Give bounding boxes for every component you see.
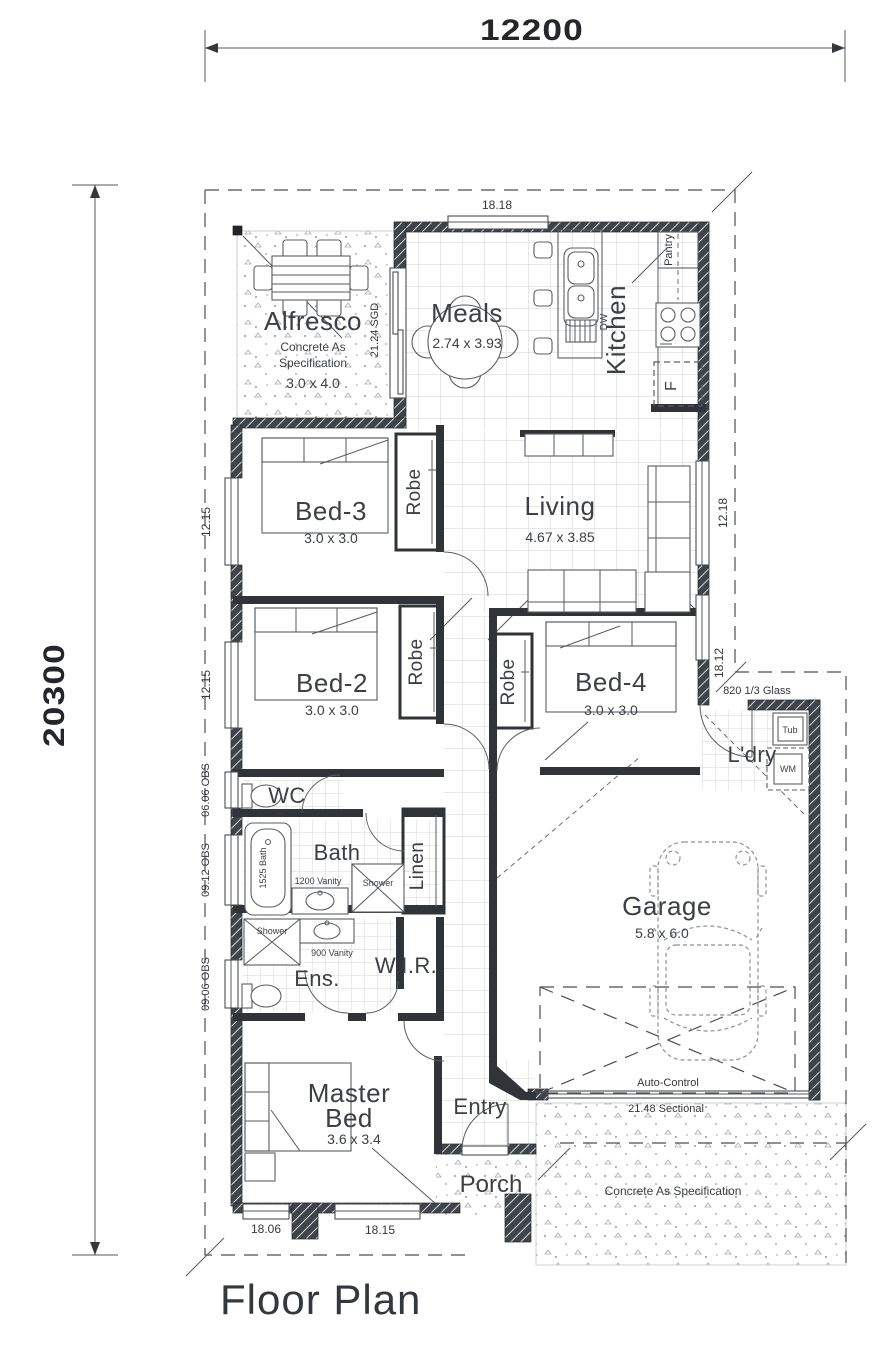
ens-window-dim: 09.06 OBS [200,957,212,1011]
alfresco-sgd-dim: 21.24 SGD [369,303,381,357]
ens-window [225,960,238,1008]
bed2-window-dim: 12.15 [199,670,213,700]
master-bed-label-2: Bed [325,1103,373,1133]
meals-window [448,216,548,229]
floor-plan-page: 12200 20300 [0,0,884,1350]
bed4-size: 3.0 x 3.0 [584,702,638,718]
meals-window-dim: 18.18 [482,198,512,212]
ens-label: Ens. [294,966,340,991]
bed4-robe-label: Robe [498,658,519,705]
master-window-1-dim: 18.06 [251,1222,281,1236]
living-window-dim: 12.18 [716,498,730,528]
dishwasher-label: DW [599,313,610,330]
linen-label: Linen [407,842,428,891]
driveway-note: Concrete As Specification [605,1184,742,1198]
bed4-window [696,595,709,660]
bath-vanity-label: 1200 Vanity [295,876,342,886]
garage-size: 5.8 x 6.0 [635,925,689,941]
bathtub [245,823,291,915]
bath-shower [352,864,404,912]
bed2-size: 3.0 x 3.0 [305,702,359,718]
bed3-window-dim: 12.15 [199,507,213,537]
garage-label: Garage [622,891,712,921]
wm-label: WM [780,764,796,774]
bath-window-dim: 09.12 OBS [200,843,212,897]
top-dimension: 12200 [205,14,845,82]
meals-size: 2.74 x 3.93 [432,335,501,351]
bed2-window [225,642,238,728]
left-dimension: 20300 [38,185,118,1255]
living-label: Living [525,491,596,521]
fridge-label: F [663,381,680,391]
bathtub-label: 1525 Bath [258,847,268,888]
pantry-label: Pantry [663,234,675,266]
bed3-robe-label: Robe [404,468,425,515]
living-size: 4.67 x 3.85 [525,529,594,545]
alfresco-note-2: Specification [279,356,347,370]
overall-height-dimension: 20300 [38,643,71,747]
ens-toilet [242,984,281,1008]
alfresco-post [233,226,242,235]
alfresco-sliding-door [390,268,406,398]
bath-label: Bath [314,840,361,865]
porch-column [505,1194,531,1242]
ens-vanity-label: 900 Vanity [311,948,353,958]
porch-label: Porch [460,1171,523,1198]
bed4-label: Bed-4 [575,667,647,697]
car [650,842,766,1060]
alfresco-size: 3.0 x 4.0 [286,375,340,391]
garage-door-dim-2: 21.48 Sectional [628,1103,704,1115]
wc-window [225,772,238,808]
ens-shower-label: Shower [257,926,288,936]
bath-vanity [292,888,348,914]
garage-door-dim-1: Auto-Control [637,1077,699,1089]
bed2-label: Bed-2 [296,668,368,698]
master-window-right [335,1204,420,1219]
bed4-window-dim: 18.12 [712,648,726,678]
living-window [696,461,709,565]
bed3-label: Bed-3 [295,496,367,526]
alfresco-note-1: Concrete As [280,340,345,354]
master-window-2-dim: 18.15 [365,1223,395,1237]
bed2-robe-label: Robe [406,638,427,685]
meals-label: Meals [431,298,503,328]
entry-door-sill [462,1146,508,1155]
floor-plan-drawing: 12200 20300 [0,0,884,1350]
tub-label: Tub [782,725,797,735]
alfresco-label: Alfresco [264,306,362,336]
garage-sectional-door [548,1091,809,1098]
ldry-label: L'dry [728,742,777,767]
bath-shower-label: Shower [363,878,394,888]
wir-label: W.I.R. [375,953,437,978]
wc-label: WC [268,783,305,808]
entry-label: Entry [453,1094,506,1119]
bed3-size: 3.0 x 3.0 [304,530,358,546]
bed3-window [225,478,238,565]
master-window-left [243,1204,289,1219]
ens-vanity [300,919,354,943]
master-bed-size: 3.6 x 3.4 [327,1131,381,1147]
overall-width-dimension: 12200 [480,14,584,47]
page-title: Floor Plan [220,1276,421,1323]
ldry-door-dim: 820 1/3 Glass [723,685,791,697]
cooktop [656,303,700,347]
wc-window-dim: 06.06 OBS [200,763,212,817]
bath-window [225,835,238,905]
